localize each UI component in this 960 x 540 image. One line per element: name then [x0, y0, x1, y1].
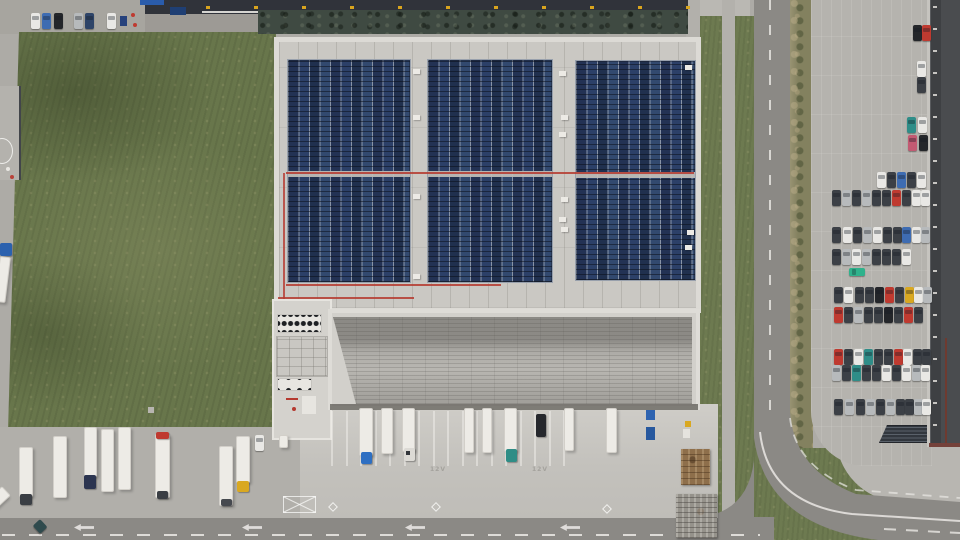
parking-cars-row: [892, 249, 901, 265]
dock-lane-line: [346, 411, 348, 466]
parking-cars-row: [902, 365, 911, 381]
dock-truck-cab-blue: [361, 452, 372, 464]
dock-lane-label: 12V: [430, 466, 454, 474]
truck-cab-dark: [221, 499, 232, 506]
green-car: [849, 268, 865, 276]
vent-panel-2x7: [277, 314, 322, 333]
parking-cars-row: [923, 287, 932, 303]
parking-cars-row: [862, 365, 871, 381]
dock-trailer: [464, 408, 474, 453]
roof-box: [413, 69, 420, 74]
dock-lane-line: [549, 411, 551, 466]
red-pipe-stub: [286, 398, 298, 400]
parking-cars-row: [855, 287, 864, 303]
parking-cars-row: [902, 249, 911, 265]
parking-cars-row: [912, 190, 921, 206]
parking-cars-row: [884, 349, 893, 365]
parking-cars-row: [832, 365, 841, 381]
parked-trailer: [118, 427, 131, 490]
parking-cars-row: [917, 172, 926, 188]
parking-cars-row: [875, 287, 884, 303]
parking-cars-row: [922, 25, 931, 41]
parking-cars-row: [877, 172, 886, 188]
parking-cars-row: [922, 349, 931, 365]
parking-cars-row: [905, 399, 914, 415]
parking-cars-row: [832, 190, 841, 206]
parking-cars-row: [842, 365, 851, 381]
parking-cars-row: [866, 399, 875, 415]
dock-trailer: [564, 408, 574, 451]
dock-truck-cab-teal: [506, 449, 517, 462]
parking-cars-row: [832, 227, 841, 243]
parking-cars-row: [852, 190, 861, 206]
parking-cars-row: [882, 249, 891, 265]
roof-box: [687, 230, 694, 235]
parking-cars-row: [921, 365, 930, 381]
plant-cabinet: [302, 396, 316, 414]
parking-cars-row: [892, 365, 901, 381]
parked-trailer: [155, 434, 170, 498]
dock-lane-line: [375, 411, 377, 466]
parked-trailer: [101, 429, 114, 492]
solar-array-1: [287, 59, 411, 283]
parking-cars-row: [918, 117, 927, 133]
parking-cars-row: [884, 307, 893, 323]
parking-cars-row: [864, 349, 873, 365]
parking-cars-row: [904, 307, 913, 323]
dock-trailer: [504, 408, 517, 452]
parking-cars-row: [883, 227, 892, 243]
parking-cars-row: [894, 307, 903, 323]
parking-cars-row: [834, 399, 843, 415]
parking-cars-row: [914, 307, 923, 323]
parking-cars-row: [862, 190, 871, 206]
parking-cars-row: [882, 365, 891, 381]
parking-cars-row: [872, 249, 881, 265]
parking-cars-row: [844, 307, 853, 323]
white-crate: [683, 429, 690, 438]
dock-lane-line: [433, 411, 435, 466]
parking-cars-row: [885, 287, 894, 303]
parking-cars-row: [908, 135, 917, 151]
parking-cars-row: [834, 307, 843, 323]
parking-cars-row: [893, 227, 902, 243]
roof-box: [559, 217, 566, 222]
parking-cars-row: [897, 172, 906, 188]
pallet-stack-gray: [676, 494, 717, 538]
parking-cars-row: [862, 249, 871, 265]
red-pipe-horizontal-mid: [286, 172, 694, 174]
red-pipe-horizontal-lower: [286, 284, 501, 286]
dock-lane-line: [418, 411, 420, 466]
parking-cars-row: [842, 190, 851, 206]
parking-cars-row: [856, 399, 865, 415]
parking-cars-row: [834, 349, 843, 365]
parking-cars-row: [872, 365, 881, 381]
roof-box: [559, 71, 566, 76]
dock-lane-label: 12V: [532, 466, 556, 474]
parking-cars-row: [843, 227, 852, 243]
parking-cars-row: [894, 349, 903, 365]
parking-cars-row: [895, 287, 904, 303]
parking-cars-row: [832, 249, 841, 265]
solar-array-2: [427, 59, 553, 283]
parking-cars-row: [907, 117, 916, 133]
parking-cars-row: [874, 307, 883, 323]
aerial-photo: Aerial top-down view of a logistics ware…: [0, 0, 960, 540]
parking-cars-row: [852, 365, 861, 381]
parking-cars-row: [882, 190, 891, 206]
solar-array-3: [575, 60, 696, 281]
truck-cab-navy: [84, 475, 96, 489]
parking-cars-row: [913, 25, 922, 41]
roof-box: [413, 274, 420, 279]
roof-box: [561, 227, 568, 232]
roof-box: [685, 245, 692, 250]
blue-bin: [646, 427, 655, 440]
parking-cars-row: [907, 172, 916, 188]
parking-cars-row: [864, 307, 873, 323]
roof-box: [413, 194, 420, 199]
truck-cab-yellow: [237, 481, 249, 492]
parking-cars-row: [903, 349, 912, 365]
parking-cars-row: [854, 307, 863, 323]
parking-cars-row: [921, 190, 930, 206]
dock-trailer: [359, 408, 373, 456]
red-valve: [292, 407, 296, 411]
parking-cars-row: [852, 249, 861, 265]
parking-cars-row: [921, 227, 930, 243]
dock-lane-line: [476, 411, 478, 466]
parked-trailer: [236, 436, 250, 483]
parking-cars-row: [922, 399, 931, 415]
truck-cab-dark: [157, 491, 168, 499]
parked-trailer: [219, 446, 233, 506]
parking-cars-row: [863, 227, 872, 243]
parking-cars-row: [917, 61, 926, 77]
yellow-crate: [685, 421, 691, 427]
plant-grid: [276, 336, 328, 377]
dock-lane-line: [520, 411, 522, 466]
parking-cars-row: [874, 349, 883, 365]
parking-cars-row: [913, 349, 922, 365]
blue-bin: [646, 410, 655, 420]
roof-box: [685, 65, 692, 70]
roof-box: [413, 115, 420, 120]
parking-cars-row: [914, 287, 923, 303]
dock-trailer: [606, 408, 617, 453]
dock-trailer: [482, 408, 492, 453]
parking-cars-row: [887, 172, 896, 188]
parking-cars-row: [919, 135, 928, 151]
parking-cars-row: [873, 227, 882, 243]
parking-cars-row: [912, 365, 921, 381]
vent-panel-1x3: [277, 378, 312, 391]
parking-cars-row: [844, 349, 853, 365]
dock-trailer: [381, 408, 393, 454]
trailer-red-end: [156, 432, 169, 439]
parking-cars-row: [845, 399, 854, 415]
road-bottom: [0, 517, 774, 540]
parking-cars-row: [876, 399, 885, 415]
white-car-by-trailers: [255, 435, 264, 451]
dock-trailer: [402, 408, 415, 452]
parking-cars-row: [902, 190, 911, 206]
parking-cars-row: [896, 399, 905, 415]
parking-cars-row: [844, 287, 853, 303]
parked-trailer: [84, 427, 97, 477]
parking-cars-row: [892, 190, 901, 206]
roof-box: [561, 115, 568, 120]
parking-cars-row: [853, 227, 862, 243]
parked-trailer: [19, 447, 33, 497]
road-bottom-dashed-line: [2, 534, 760, 536]
roof-box: [561, 197, 568, 202]
parking-cars-row: [865, 287, 874, 303]
parking-cars-row: [854, 349, 863, 365]
black-van: [536, 414, 546, 437]
pallet-stack-brown: [681, 449, 710, 485]
roof-box: [559, 132, 566, 137]
parking-cars-row: [917, 77, 926, 93]
parked-trailer: [53, 436, 67, 498]
truck-cab-dark: [20, 494, 32, 505]
parking-cars-row: [872, 190, 881, 206]
crosshatch-marking: [283, 496, 316, 513]
parking-cars-row: [902, 227, 911, 243]
white-van: [279, 435, 288, 448]
parking-cars-row: [912, 227, 921, 243]
parking-cars-row: [834, 287, 843, 303]
parking-cars-row: [905, 287, 914, 303]
dock-canopy-inner: [333, 317, 692, 404]
parking-cars-row: [842, 249, 851, 265]
dock-lane-line: [447, 411, 449, 466]
parking-cars-row: [886, 399, 895, 415]
dock-lane-line: [331, 411, 333, 466]
cab-detail: [406, 451, 410, 455]
